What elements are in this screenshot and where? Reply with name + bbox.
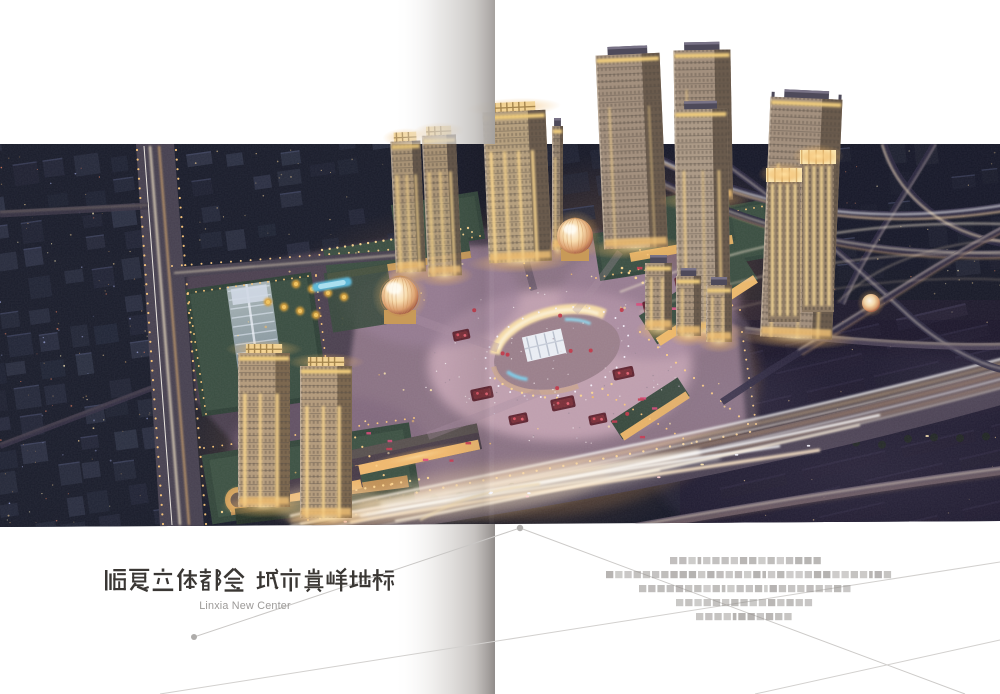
svg-text:Linxia New Center: Linxia New Center xyxy=(199,600,291,612)
